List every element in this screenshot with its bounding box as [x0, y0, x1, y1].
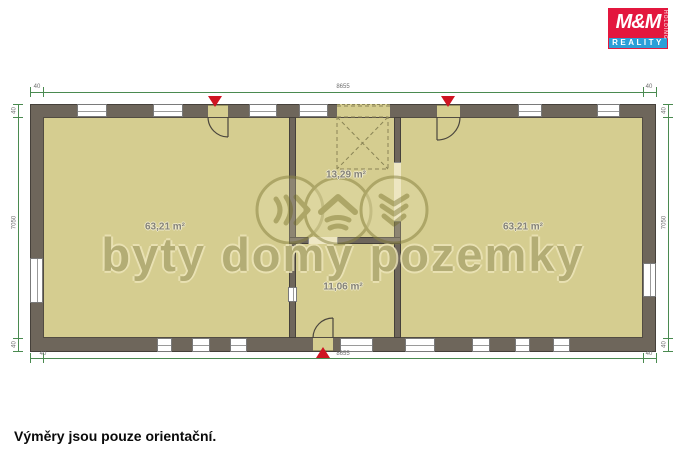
dimension-label: 40 [27, 84, 47, 91]
floorplan-page: 63,21 m² 13,29 m² 11,06 m² 63,21 m² byty… [0, 0, 686, 457]
dimension-label: 40 [639, 351, 659, 358]
dimension-label: 40 [12, 99, 19, 123]
caption-text: Výměry jsou pouze orientační. [14, 428, 216, 444]
dimension-line-bottom [30, 358, 656, 359]
watermark-text: byty domy pozemky [0, 230, 686, 280]
entrance-arrow-icon [208, 96, 222, 107]
dimension-label: 40 [12, 333, 19, 357]
room-area-label: 11,06 m² [323, 282, 362, 293]
dimension-label: 40 [662, 99, 669, 123]
dimension-label: 7050 [662, 211, 669, 235]
logo-holding-text: HOLDING [662, 10, 668, 40]
logo-red-box: M&M HOLDING [608, 8, 668, 37]
mm-reality-logo: M&M HOLDING REALITY [608, 8, 668, 49]
dimension-label: 40 [33, 351, 53, 358]
dashed-ceiling-opening [337, 106, 390, 169]
room-area-label: 13,29 m² [326, 170, 366, 181]
logo-mm-text: M&M [616, 11, 661, 33]
dimension-label: 40 [662, 333, 669, 357]
dimension-label: 8655 [313, 84, 373, 91]
dimension-label: 8655 [313, 351, 373, 358]
dimension-line-top [30, 92, 656, 93]
dimension-label: 40 [639, 84, 659, 91]
entrance-arrow-icon [441, 96, 455, 107]
logo-reality-bar: REALITY [608, 37, 668, 49]
dimension-label: 7050 [12, 211, 19, 235]
